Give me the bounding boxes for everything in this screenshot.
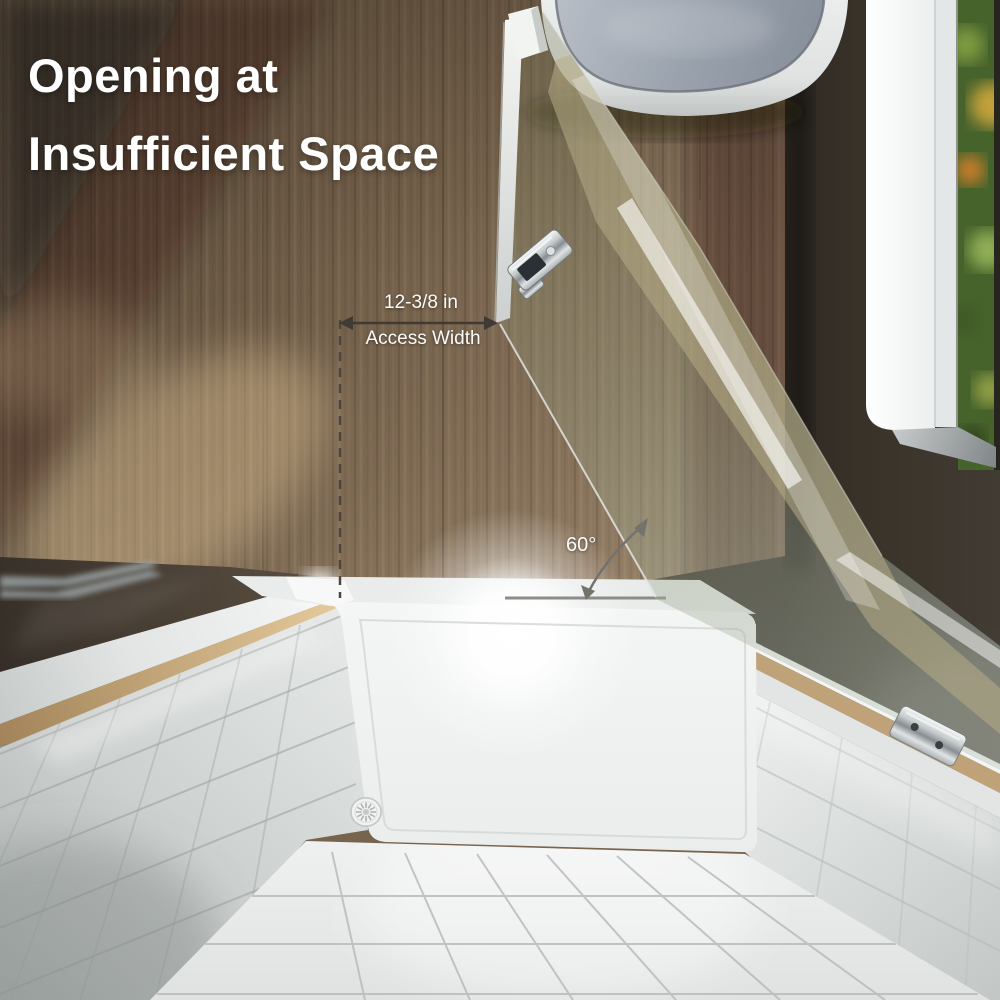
angle-value: 60° [566, 534, 596, 557]
product-render-scene: Opening at Insufficient Space 12-3/8 in … [0, 0, 1000, 1000]
title-line-1: Opening at [28, 48, 278, 103]
window-frame [866, 0, 935, 430]
base-light-reflection [387, 509, 637, 759]
dimension-label: Access Width [365, 328, 480, 350]
title-line-2: Insufficient Space [28, 126, 439, 181]
dimension-value: 12-3/8 in [384, 292, 458, 314]
window [866, 0, 1000, 470]
drain-icon [350, 797, 382, 827]
